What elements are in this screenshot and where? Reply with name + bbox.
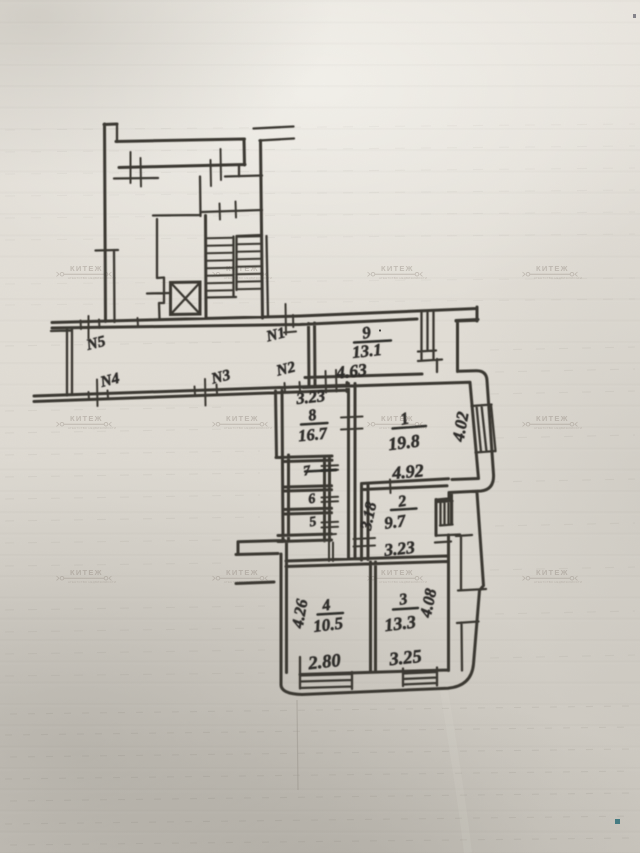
svg-text:10.5: 10.5 xyxy=(312,613,344,636)
svg-text:19.8: 19.8 xyxy=(387,431,421,455)
svg-text:16.7: 16.7 xyxy=(297,423,328,445)
svg-text:3.25: 3.25 xyxy=(387,647,422,670)
svg-text:9.7: 9.7 xyxy=(383,511,408,533)
svg-text:13.3: 13.3 xyxy=(383,612,417,636)
svg-text:4.92: 4.92 xyxy=(390,460,424,483)
svg-text:3.23: 3.23 xyxy=(382,537,416,560)
svg-text:13.1: 13.1 xyxy=(351,340,383,362)
svg-text:3.23: 3.23 xyxy=(294,386,326,408)
svg-text:4.63: 4.63 xyxy=(334,359,368,382)
svg-text:2.80: 2.80 xyxy=(306,651,341,674)
